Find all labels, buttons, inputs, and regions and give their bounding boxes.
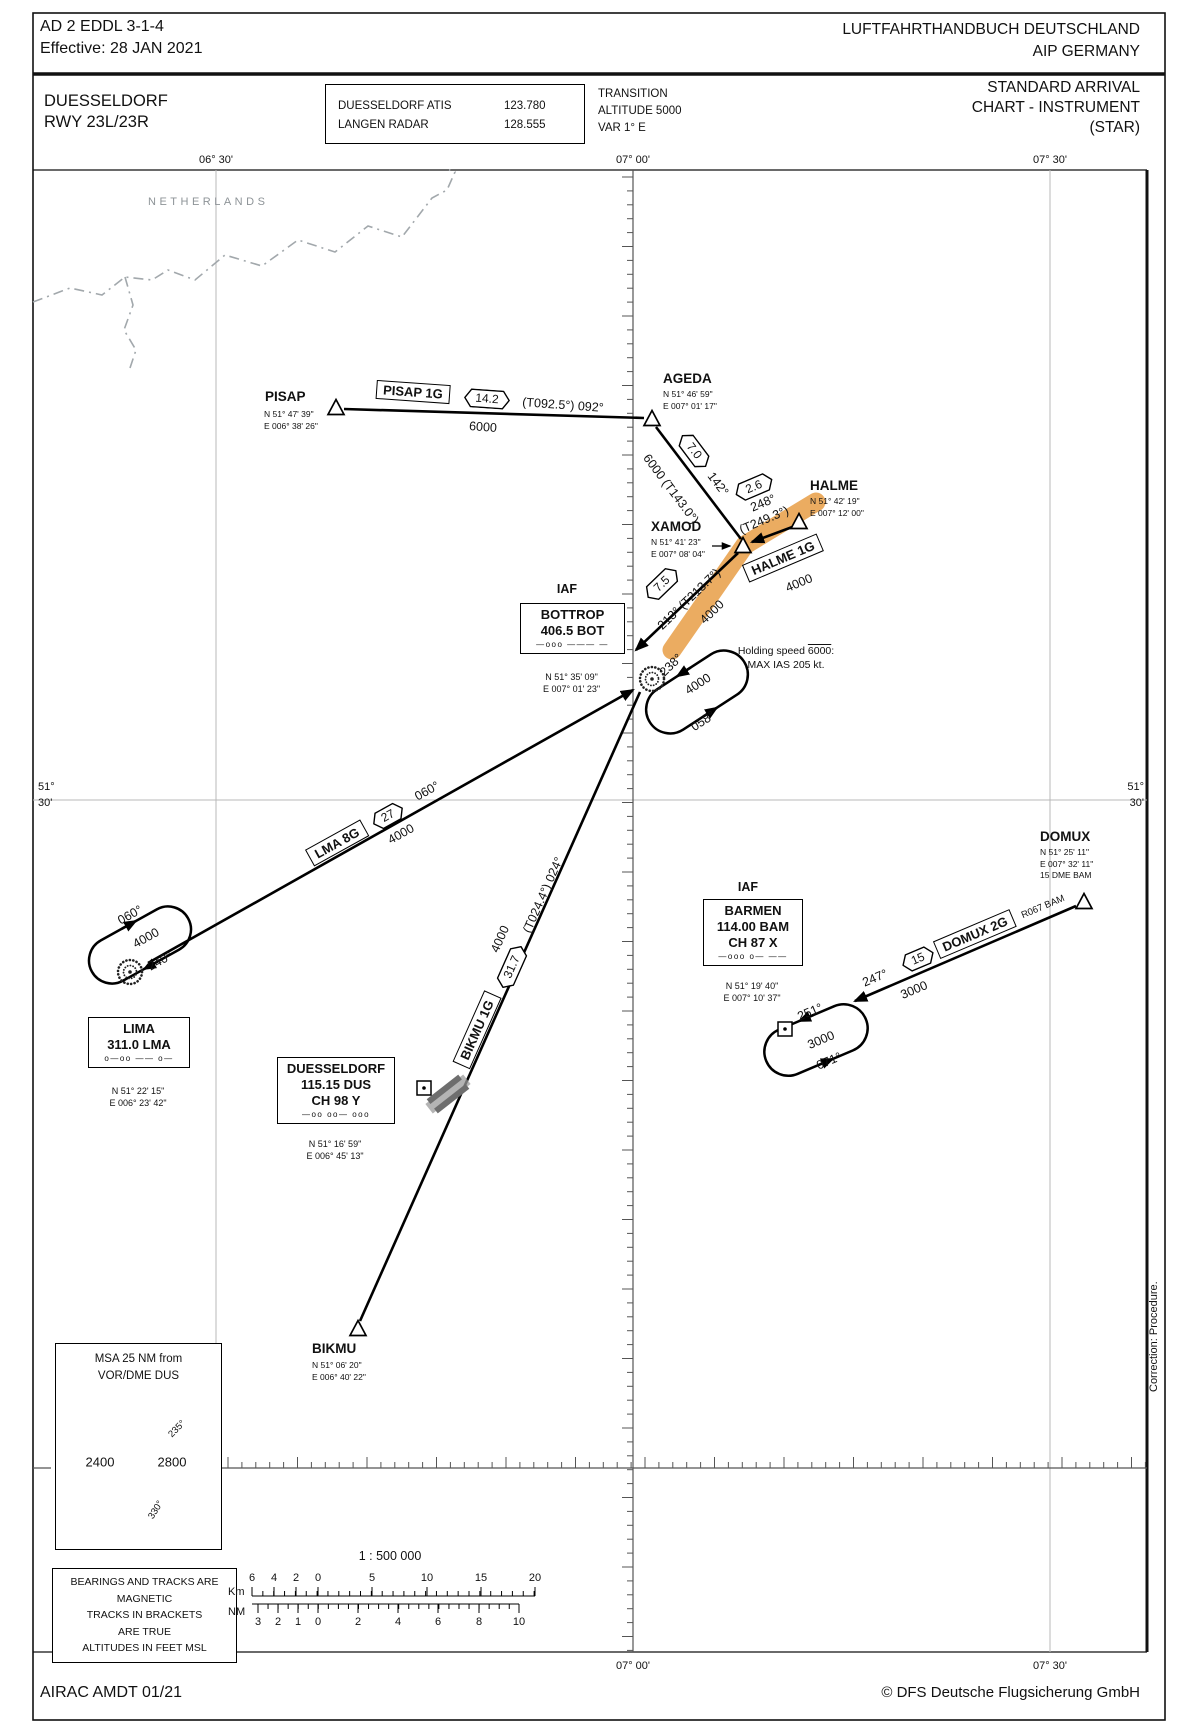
navaid-coords-bottrop: N 51° 35' 09"E 007° 01' 23" <box>543 672 600 695</box>
route-label-a6000p: 6000 <box>469 419 498 435</box>
navaid-coords-barmen: N 51° 19' 40"E 007° 10' 37" <box>723 981 780 1004</box>
airac-amendment: AIRAC AMDT 01/21 <box>40 1684 182 1702</box>
scale-km-label: Km <box>228 1586 245 1598</box>
waypoint-coords-xamod: N 51° 41' 23"E 007° 08' 04" <box>651 537 705 560</box>
grid-latitude-label: 30' <box>38 797 84 809</box>
waypoint-coords-ageda: N 51° 46' 59"E 007° 01' 17" <box>663 389 717 412</box>
navaid-coord-line: E 007° 10' 37" <box>723 993 780 1005</box>
grid-latitude-label: 30' <box>1098 797 1144 809</box>
navaid-id-line: LIMA <box>93 1021 185 1037</box>
route-lines <box>148 409 1076 1321</box>
chart-type-line1: STANDARD ARRIVAL <box>740 79 1140 97</box>
iaf-label-bottrop: IAF <box>557 582 577 596</box>
holding-note-speed: MAX IAS 205 kt. <box>747 659 824 671</box>
waypoint-coord-line: E 007° 01' 17" <box>663 401 717 413</box>
radar-frequency: 128.555 <box>504 118 546 133</box>
scale-nm-number: 1 <box>295 1616 301 1628</box>
msa-title-line2: VOR/DME DUS <box>56 1368 221 1385</box>
scale-nm-number: 10 <box>513 1616 525 1628</box>
effective-date: Effective: 28 JAN 2021 <box>40 40 202 58</box>
grid-latitude-label: 51° <box>38 781 84 793</box>
waypoint-triangle-icons <box>328 400 1092 1336</box>
grid-longitude-label: 06° 30' <box>199 154 233 166</box>
document-reference: AD 2 EDDL 3-1-4 <box>40 18 164 36</box>
waypoint-coords-pisap: N 51° 47' 39"E 006° 38' 26" <box>264 409 318 432</box>
country-label: NETHERLANDS <box>148 196 268 208</box>
waypoint-coord-line: E 006° 40' 22" <box>312 1372 366 1384</box>
copyright: © DFS Deutsche Flugsicherung GmbH <box>700 1684 1140 1701</box>
holding-speed-note: Holding speed 6000: MAX IAS 205 kt. <box>726 645 846 672</box>
distance-value: 14.2 <box>463 388 510 410</box>
scale-nm-number: 4 <box>395 1616 401 1628</box>
navaid-box-lima: LIMA311.0 LMAo—oo —— o— <box>88 1017 190 1068</box>
navaid-coords-lima: N 51° 22' 15"E 006° 23' 42" <box>109 1086 166 1109</box>
waypoint-name-domux: DOMUX <box>1040 829 1090 844</box>
navaid-id-line: CH 98 Y <box>282 1093 390 1109</box>
runway-designator: RWY 23L/23R <box>44 113 149 132</box>
navaid-id-line: DUESSELDORF <box>282 1061 390 1077</box>
bearing-note-line: BEARINGS AND TRACKS ARE <box>53 1574 236 1591</box>
bearing-note-line: ARE TRUE <box>53 1624 236 1641</box>
iaf-label-barmen: IAF <box>738 880 758 894</box>
waypoint-coord-line: N 51° 25' 11" <box>1040 847 1093 859</box>
holding-note-altitude: 6000 <box>808 645 831 657</box>
frequency-box: DUESSELDORF ATIS 123.780 LANGEN RADAR 12… <box>325 84 585 144</box>
scale-nm-number: 8 <box>476 1616 482 1628</box>
scale-km-number: 15 <box>475 1572 487 1584</box>
scale-nm-number: 6 <box>435 1616 441 1628</box>
waypoint-coord-line: E 007° 08' 04" <box>651 549 705 561</box>
waypoint-coord-line: N 51° 47' 39" <box>264 409 318 421</box>
navaid-id-line: 406.5 BOT <box>525 623 620 639</box>
holding-note-text: Holding speed <box>738 645 808 657</box>
bearing-note-box: BEARINGS AND TRACKS ARE MAGNETIC TRACKS … <box>52 1568 237 1663</box>
airport-name: DUESSELDORF <box>44 92 168 111</box>
navaid-coord-line: E 007° 01' 23" <box>543 684 600 696</box>
transition-line1: TRANSITION <box>598 87 668 102</box>
grid-longitude-label: 07° 30' <box>1033 1660 1067 1672</box>
navaid-coord-line: N 51° 35' 09" <box>543 672 600 684</box>
barmen-vordme-icon <box>778 1022 792 1036</box>
scale-nm-label: NM <box>228 1606 245 1618</box>
navaid-id-line: 114.00 BAM <box>708 919 798 935</box>
waypoint-name-bikmu: BIKMU <box>312 1341 356 1356</box>
correction-note: Correction: Procedure. <box>1148 1252 1160 1392</box>
scale-bar-rulers <box>252 1587 535 1613</box>
grid-latitude-label: 51° <box>1098 781 1144 793</box>
navaid-coord-line: E 006° 45' 13" <box>306 1151 363 1163</box>
waypoint-coord-line: E 007° 32' 11" <box>1040 859 1093 871</box>
bearing-note-line: ALTITUDES IN FEET MSL <box>53 1640 236 1657</box>
bearing-note-line: MAGNETIC <box>53 1591 236 1608</box>
grid-longitude-label: 07° 00' <box>616 154 650 166</box>
scale-km-number: 10 <box>421 1572 433 1584</box>
waypoint-coord-line: N 51° 41' 23" <box>651 537 705 549</box>
grid-longitude-label: 07° 00' <box>616 1660 650 1672</box>
scale-km-number: 20 <box>529 1572 541 1584</box>
navaid-morse-code: —oo oo— ooo <box>282 1109 390 1120</box>
scale-ratio: 1 : 500 000 <box>359 1549 422 1563</box>
scale-km-number: 5 <box>369 1572 375 1584</box>
scale-km-number: 2 <box>293 1572 299 1584</box>
distance-marker-d142: 14.2 <box>463 388 510 410</box>
navaid-box-barmen: BARMEN114.00 BAMCH 87 X—ooo o— —— <box>703 899 803 966</box>
scale-nm-number: 3 <box>255 1616 261 1628</box>
aip-title: AIP GERMANY <box>700 43 1140 61</box>
holding-note-colon: : <box>831 645 834 657</box>
atis-frequency: 123.780 <box>504 99 546 114</box>
chart-type-line2: CHART - INSTRUMENT <box>740 99 1140 117</box>
navaid-box-dus: DUESSELDORF115.15 DUSCH 98 Y—oo oo— ooo <box>277 1057 395 1124</box>
grid-longitude-label: 07° 30' <box>1033 154 1067 166</box>
navaid-box-bottrop: BOTTROP406.5 BOT—ooo ——— — <box>520 603 625 654</box>
navaid-id-line: BOTTROP <box>525 607 620 623</box>
scale-nm-number: 2 <box>355 1616 361 1628</box>
bearing-note-line: TRACKS IN BRACKETS <box>53 1607 236 1624</box>
duesseldorf-dme-icon <box>417 1081 431 1095</box>
navaid-morse-code: o—oo —— o— <box>93 1053 185 1064</box>
waypoint-coord-line: N 51° 06' 20" <box>312 1360 366 1372</box>
waypoint-coord-line: N 51° 46' 59" <box>663 389 717 401</box>
scale-nm-number: 0 <box>315 1616 321 1628</box>
waypoint-coord-line: N 51° 42' 19" <box>810 496 864 508</box>
waypoint-name-ageda: AGEDA <box>663 371 712 386</box>
navaid-morse-code: —ooo o— —— <box>708 951 798 962</box>
waypoint-coords-domux: N 51° 25' 11"E 007° 32' 11"15 DME BAM <box>1040 847 1093 882</box>
scale-nm-number: 2 <box>275 1616 281 1628</box>
scale-km-number: 4 <box>271 1572 277 1584</box>
navaid-id-line: BARMEN <box>708 903 798 919</box>
atis-label: DUESSELDORF ATIS <box>338 99 452 114</box>
radar-label: LANGEN RADAR <box>338 118 429 133</box>
waypoint-name-halme: HALME <box>810 478 858 493</box>
transition-line2: ALTITUDE 5000 <box>598 104 682 119</box>
navaid-coord-line: N 51° 19' 40" <box>723 981 780 993</box>
msa-sector-value-east: 2800 <box>158 1455 187 1470</box>
msa-box: MSA 25 NM from VOR/DME DUS <box>55 1343 222 1550</box>
navaid-morse-code: —ooo ——— — <box>525 639 620 650</box>
waypoint-coord-line: E 007° 12' 00" <box>810 508 864 520</box>
handbook-title: LUFTFAHRTHANDBUCH DEUTSCHLAND <box>700 21 1140 39</box>
navaid-coord-line: N 51° 22' 15" <box>109 1086 166 1098</box>
waypoint-coord-line: 15 DME BAM <box>1040 870 1093 882</box>
navaid-coords-dus: N 51° 16' 59"E 006° 45' 13" <box>306 1139 363 1162</box>
star-chart-page: AD 2 EDDL 3-1-4 Effective: 28 JAN 2021 L… <box>0 0 1200 1733</box>
msa-title-line1: MSA 25 NM from <box>56 1351 221 1368</box>
waypoint-coords-halme: N 51° 42' 19"E 007° 12' 00" <box>810 496 864 519</box>
scale-km-number: 0 <box>315 1572 321 1584</box>
navaid-coord-line: N 51° 16' 59" <box>306 1139 363 1151</box>
navaid-id-line: 311.0 LMA <box>93 1037 185 1053</box>
navaid-id-line: 115.15 DUS <box>282 1077 390 1093</box>
chart-type-line3: (STAR) <box>740 119 1140 137</box>
waypoint-coord-line: E 006° 38' 26" <box>264 421 318 433</box>
waypoint-coords-bikmu: N 51° 06' 20"E 006° 40' 22" <box>312 1360 366 1383</box>
scale-km-number: 6 <box>249 1572 255 1584</box>
transition-line3: VAR 1° E <box>598 121 646 136</box>
msa-sector-value-west: 2400 <box>86 1455 115 1470</box>
navaid-coord-line: E 006° 23' 42" <box>109 1098 166 1110</box>
waypoint-name-pisap: PISAP <box>265 389 306 404</box>
navaid-id-line: CH 87 X <box>708 935 798 951</box>
